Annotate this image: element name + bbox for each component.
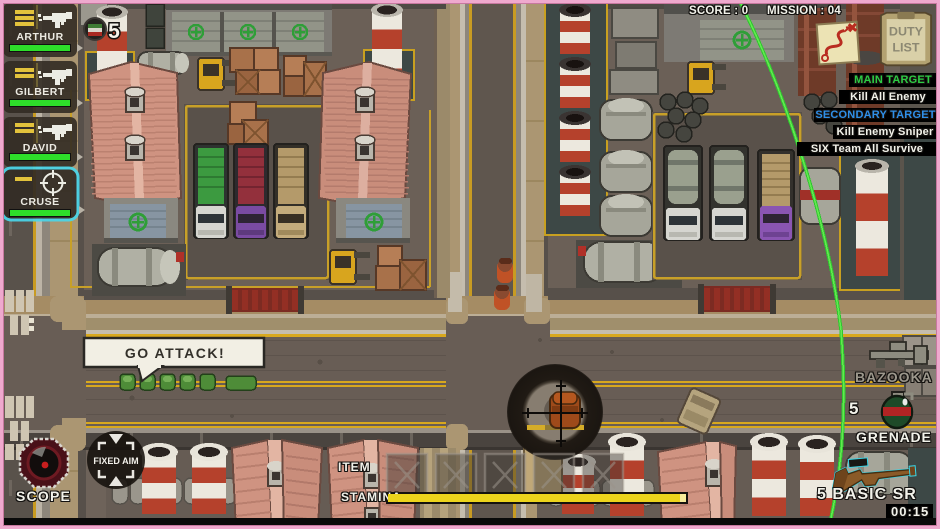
svg-text:FIXED AIM: FIXED AIM	[93, 456, 138, 466]
svg-text:GILBERT: GILBERT	[15, 86, 65, 98]
svg-text:DAVID: DAVID	[23, 142, 57, 154]
svg-text:DUTY: DUTY	[889, 25, 923, 39]
svg-text:GO ATTACK!: GO ATTACK!	[125, 345, 225, 361]
svg-text:CRUSE: CRUSE	[20, 196, 59, 208]
svg-text:5: 5	[108, 20, 120, 43]
svg-text:ARTHUR: ARTHUR	[16, 31, 63, 43]
svg-text:LIST: LIST	[892, 41, 920, 55]
